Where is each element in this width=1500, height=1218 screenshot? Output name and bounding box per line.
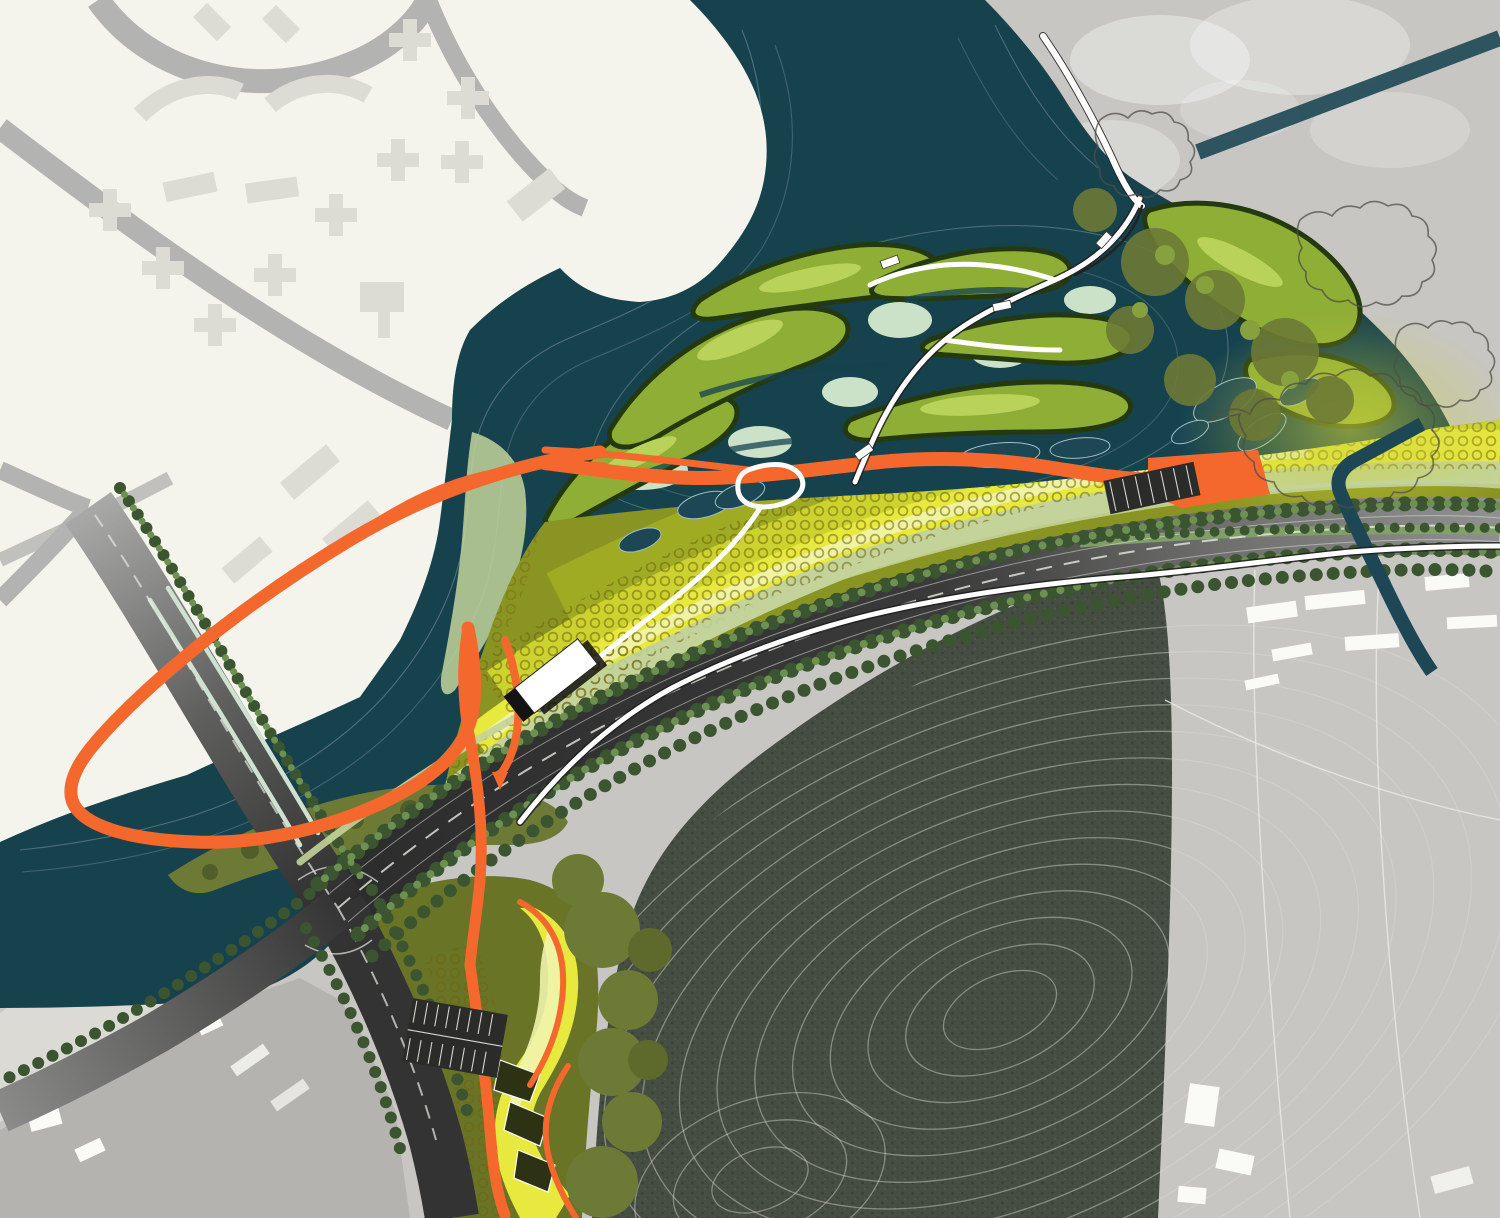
site-plan-map <box>0 0 1500 1218</box>
masterplan-canvas <box>0 0 1500 1218</box>
